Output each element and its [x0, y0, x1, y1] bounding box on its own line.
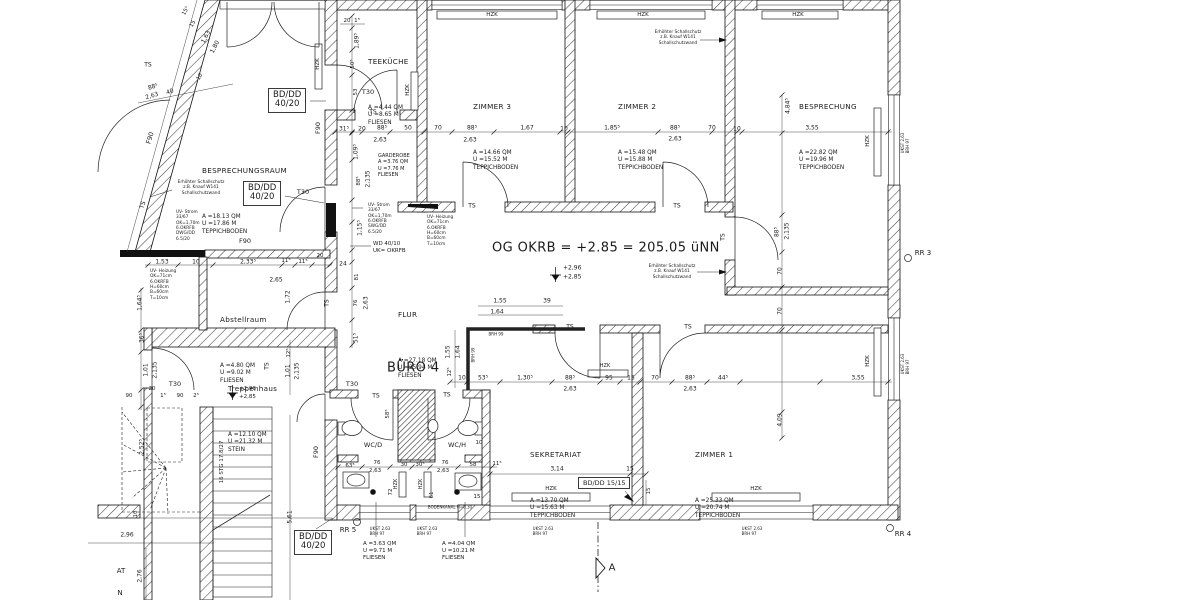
- section-marker: [596, 522, 605, 592]
- walls-solid-layer: [120, 203, 438, 257]
- plan-drawing: [0, 0, 1200, 600]
- glass-parapet: [468, 329, 585, 390]
- floor-plan-page: 31⁵2088⁵2,63507088⁵2,631,67101,85⁵88⁵2,6…: [0, 0, 1200, 600]
